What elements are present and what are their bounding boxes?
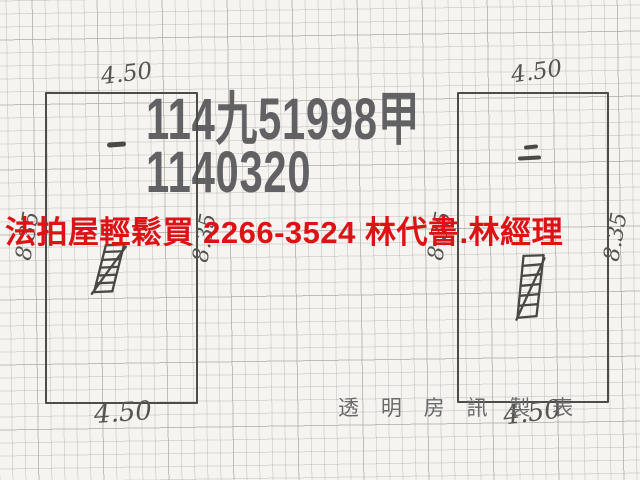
graph-paper: 114九51998甲 1140320 4.50 4.50 4.50 4.50 8… — [0, 0, 640, 480]
credit-text: 透 明 房 訊 製 表 — [338, 392, 581, 422]
ad-banner: 法拍屋輕鬆買 2266-3524 林代書.林經理 — [5, 215, 640, 251]
staircase-icon — [512, 252, 549, 323]
unit-two-mark-stroke — [518, 155, 541, 160]
unit-two-mark — [518, 145, 544, 163]
dim-unit1-bottom: 4.50 — [93, 396, 153, 430]
unit-two-mark-stroke — [524, 144, 538, 149]
